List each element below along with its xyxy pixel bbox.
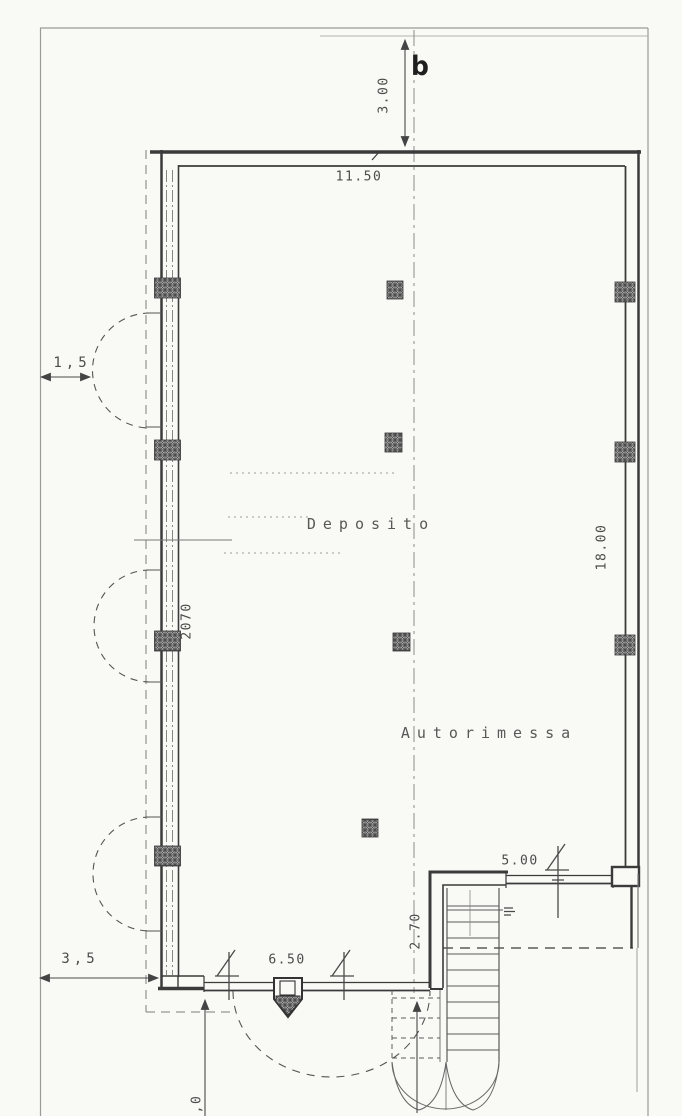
dim-side-setback-upper: 1,5 — [53, 355, 90, 371]
door-swing-arcs — [92, 313, 150, 931]
dim-bottom-partial: ,0 — [190, 1095, 205, 1114]
left-wall-pillars — [155, 278, 181, 866]
stair-enclosure-walls — [430, 867, 639, 1092]
interior-columns — [362, 281, 410, 837]
dim-plan-width: 11.50 — [336, 170, 383, 185]
dotted-partition-lines — [224, 473, 396, 553]
gate-center-pier — [274, 978, 302, 1017]
dim-front-setback: 3.00 — [377, 76, 392, 113]
plan-linework — [0, 0, 682, 1116]
stair-fan-arcs — [392, 1062, 499, 1110]
gate-swing-arc — [233, 991, 430, 1077]
dim-stair-width: 2.70 — [409, 912, 424, 949]
room-label-autorimessa: Autorimessa — [401, 724, 577, 742]
gate-opening — [204, 976, 430, 992]
dim-gate-width: 6.50 — [268, 953, 305, 968]
section-marker-b: b — [411, 50, 429, 81]
dim-left-opening: 2070 — [180, 602, 195, 639]
floor-plan-sheet: b 3.00 11.50 1,5 Deposito 2070 18.00 Aut… — [0, 0, 682, 1116]
dim-rear-opening: 5.00 — [501, 854, 538, 869]
dim-side-setback-lower: 3,5 — [61, 951, 98, 967]
room-label-deposito: Deposito — [307, 515, 435, 533]
building-walls — [150, 150, 641, 990]
dim-plan-depth: 18.00 — [595, 524, 610, 571]
